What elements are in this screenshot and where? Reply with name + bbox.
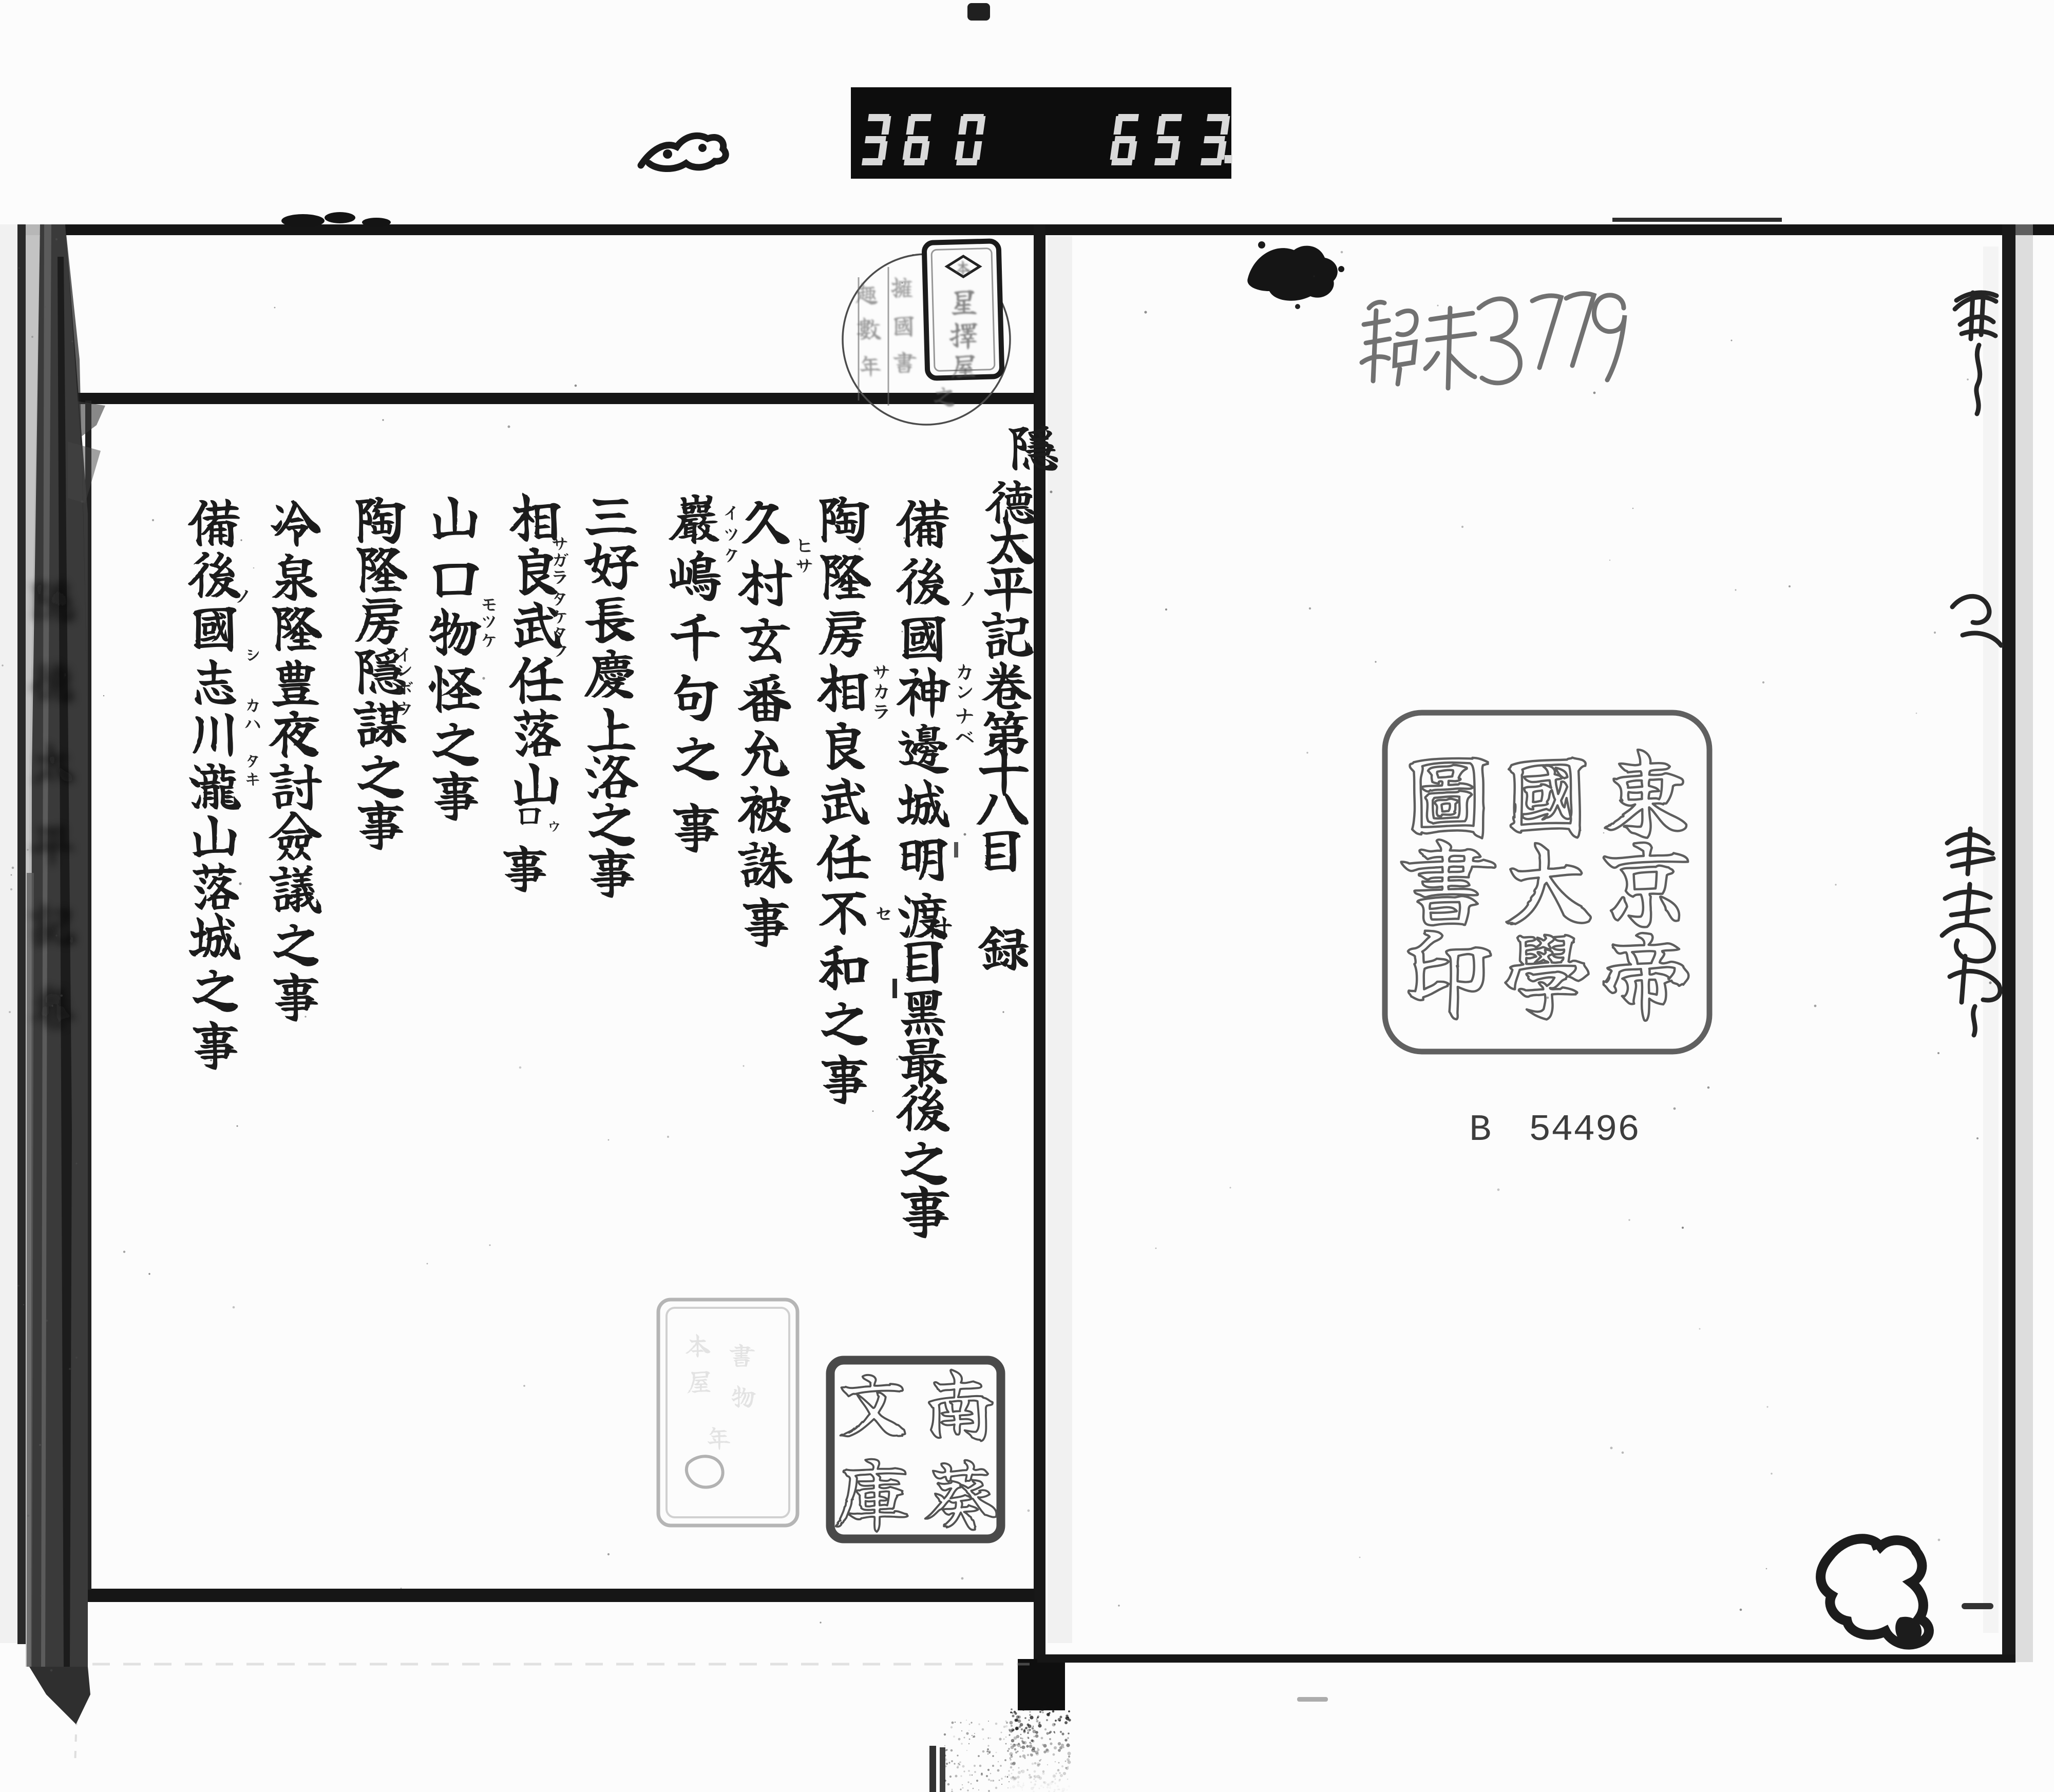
svg-text:B: B — [1469, 1109, 1491, 1151]
svg-text:54496: 54496 — [1529, 1109, 1640, 1151]
